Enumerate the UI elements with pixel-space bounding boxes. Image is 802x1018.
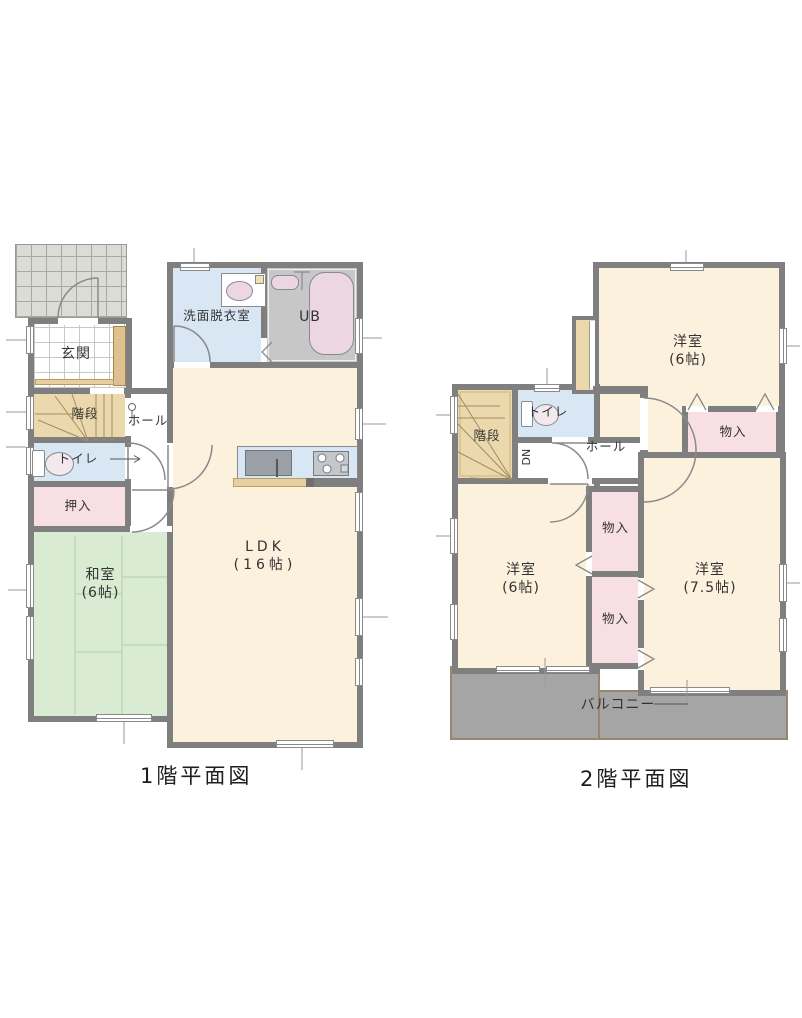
label-yoshitsu-6a: 洋室 (6帖) (640, 333, 736, 369)
room-hall-1f (125, 388, 173, 532)
kitchen-front-panel (233, 478, 307, 487)
label-ub: UB (284, 308, 336, 326)
label-yoshitsu-6b: 洋室 (6帖) (473, 561, 569, 597)
label-washitsu: 和室 (6帖) (58, 566, 143, 602)
window (546, 666, 590, 673)
door-opening (638, 648, 644, 670)
door-opening (90, 388, 124, 394)
window (779, 328, 787, 364)
label-monoire-upper: 物入 (588, 520, 643, 536)
door-opening (125, 447, 132, 479)
genkan-step (35, 379, 114, 385)
shower-area-icon (271, 275, 299, 290)
window (26, 564, 34, 608)
window (779, 564, 787, 602)
toilet-tank-icon (32, 450, 45, 477)
label-senmen: 洗面脱衣室 (170, 308, 264, 324)
label-monoire-right: 物入 (700, 424, 766, 440)
kitchen-wall-stub (314, 478, 363, 487)
window (450, 604, 458, 640)
window (355, 658, 363, 686)
label-hall-2f: ホール (574, 439, 638, 455)
label-oshiire: 押入 (50, 498, 106, 514)
washbasin-shelf-icon (255, 275, 264, 284)
label-yoshitsu-75: 洋室 (7.5帖) (660, 561, 760, 597)
window (534, 384, 560, 392)
window (180, 263, 210, 271)
floor-plan-image: 玄関 階段 トイレ 押入 和室 (6帖) LDK (16帖) 洗面脱衣室 UB … (0, 0, 802, 1018)
window (26, 326, 34, 354)
floor2-title: 2階平面図 (580, 763, 692, 793)
door-opening (586, 552, 592, 576)
door-opening (756, 406, 778, 412)
window (26, 616, 34, 660)
label-monoire-lower: 物入 (588, 611, 643, 627)
window (355, 598, 363, 636)
label-genkan: 玄関 (44, 345, 108, 363)
kitchen-sink-icon (245, 450, 292, 476)
room-washitsu (28, 526, 173, 722)
washbasin-bowl-icon (226, 281, 253, 301)
door-opening (686, 406, 708, 412)
door-opening (638, 578, 644, 600)
door-opening (548, 478, 592, 484)
window (26, 396, 34, 430)
closet-2f (572, 316, 599, 394)
floor1-title: 1階平面図 (140, 760, 252, 790)
stove-icon (313, 451, 349, 476)
window (355, 492, 363, 532)
label-kaidan-2f: 階段 (456, 428, 518, 444)
label-kaidan-1f: 階段 (55, 406, 115, 422)
entrance-porch (15, 244, 127, 318)
window (96, 714, 152, 722)
door-opening (130, 526, 172, 532)
door-opening (640, 398, 648, 450)
label-ldk: LDK (16帖) (215, 538, 315, 574)
door-opening (261, 338, 267, 362)
door-opening (174, 362, 210, 368)
label-toire-1f: トイレ (46, 451, 110, 467)
window (276, 740, 334, 748)
kitchen-post (306, 478, 314, 487)
window (670, 263, 704, 271)
label-toire-2f: トイレ (514, 404, 582, 420)
window (450, 518, 458, 554)
door-opening (167, 443, 173, 487)
window (650, 687, 730, 694)
window (779, 618, 787, 652)
door-opening (58, 318, 98, 325)
label-balcony: バルコニー (570, 696, 666, 714)
window (355, 318, 363, 354)
label-hall-1f: ホール (118, 413, 178, 429)
window (355, 408, 363, 440)
closet-door-strip (589, 321, 595, 389)
window (496, 666, 540, 673)
shoe-cabinet (113, 326, 126, 386)
label-dn: DN (520, 442, 534, 472)
